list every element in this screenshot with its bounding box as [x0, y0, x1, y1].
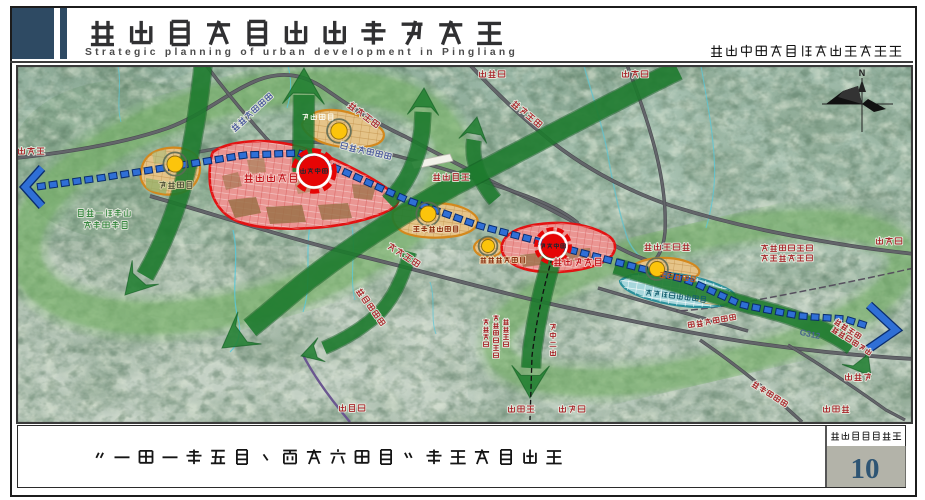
svg-text:N: N — [859, 68, 866, 78]
svg-text:10: 10 — [851, 453, 880, 485]
